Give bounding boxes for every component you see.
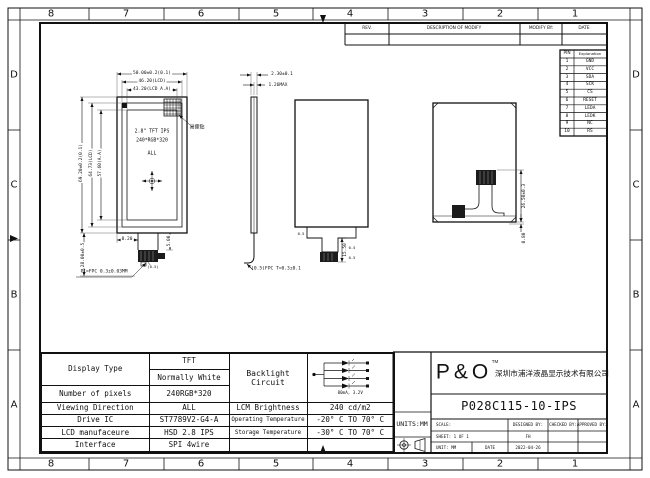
pin-number: 5: [566, 91, 569, 96]
zone-label: 6: [198, 9, 204, 20]
tear-sticker: [164, 99, 181, 116]
zone-label: 7: [123, 9, 129, 20]
dim-label: 0.5: [349, 256, 356, 260]
zone-label: C: [11, 180, 18, 191]
rev-header: REV.: [362, 26, 371, 30]
zone-label: 3: [422, 9, 428, 20]
pin-name: LEDA: [585, 106, 596, 111]
spec-value: ST7789V2-G4-A: [149, 414, 229, 426]
part-number: P028C115-10-IPS: [461, 400, 577, 412]
spec-table: Display Type TFT Backlight Circuit: [40, 352, 395, 453]
sheet-label: SHEET: 1 OF 1: [436, 434, 469, 438]
dim-label: 1.26MAX: [268, 84, 289, 89]
zone-label: B: [11, 290, 18, 301]
unit-label: UNIT: MM: [436, 445, 456, 449]
dim-label: 43.20(LCD A.A): [132, 88, 172, 93]
spec-value: TFT: [149, 353, 229, 370]
pin-number: 2: [566, 67, 569, 72]
zone-label: 1: [572, 9, 578, 20]
zone-label: D: [632, 70, 640, 81]
designed-by-label: DESIGNED BY:: [513, 423, 543, 427]
pin-name: SCK: [586, 83, 594, 88]
zone-label: 5: [273, 459, 279, 470]
spec-label: LCM Brightness: [229, 402, 307, 414]
spec-value: ALL: [149, 402, 229, 414]
dim-label: 0.5: [298, 232, 305, 236]
scale-label: SCALE:: [436, 423, 451, 427]
fpc-note: P1=FPC 0.3±0.03MM: [80, 271, 127, 276]
pin-number: 1: [566, 60, 569, 65]
spec-value: -20° C TO 70° C: [307, 414, 394, 426]
zone-label: 7: [123, 459, 129, 470]
designer-name: FH: [525, 434, 530, 438]
zone-label: 1: [572, 459, 578, 470]
zone-label: A: [633, 400, 640, 411]
backlight-rating: 80mA, 3.2V: [308, 391, 394, 396]
sticker-label: 易撕贴: [189, 126, 204, 131]
dim-label: 0.5: [349, 246, 356, 250]
spec-label: [229, 439, 307, 452]
zone-label: A: [11, 400, 18, 411]
backlight-circuit-cell: 80mA, 3.2V: [307, 353, 394, 402]
spec-value: 240 cd/m2: [307, 402, 394, 414]
dim-label: 0.80: [523, 232, 528, 245]
dim-label: 57.60(A.A): [99, 148, 104, 177]
spec-label: Operating Temperature: [229, 414, 307, 426]
spec-label: Drive IC: [41, 414, 149, 426]
pin-name: RS: [587, 130, 592, 135]
pin-number: 7: [566, 106, 569, 111]
zone-label: 5: [273, 9, 279, 20]
dim-label: 28.00±0.5: [82, 242, 87, 268]
zone-label: 2: [497, 459, 503, 470]
screen-label: ALL: [148, 153, 157, 158]
spec-label: Interface: [41, 439, 149, 452]
zone-label: 8: [48, 9, 54, 20]
pin-header: PIN: [563, 52, 570, 56]
zone-label: C: [633, 180, 640, 191]
backlight-circuit-label: Backlight Circuit: [229, 353, 307, 402]
spec-value: [307, 439, 394, 452]
dim-label: 26.50±0.3: [523, 183, 528, 209]
dim-label: 15.50: [344, 242, 349, 258]
date-header: DATE: [578, 26, 589, 30]
dim-label: 5.00: [168, 235, 173, 248]
spec-value: SPI 4wire: [149, 439, 229, 452]
pin-name: GND: [586, 60, 594, 65]
dim-label: 8.20: [121, 238, 134, 243]
checked-by-label: CHECKED BY:: [549, 423, 577, 427]
date-label: DATE: [485, 445, 495, 449]
pin-number: 3: [566, 75, 569, 80]
zone-label: D: [10, 70, 18, 81]
description-header: DESCRIPTION OF MODIFY: [427, 26, 481, 30]
spec-value: Normally White: [149, 370, 229, 386]
zone-label: 6: [198, 459, 204, 470]
zone-label: B: [633, 290, 640, 301]
side-view: [240, 72, 268, 270]
dim-label: 69.20±0.2(0.1): [80, 143, 85, 183]
company-name: 深圳市浦洋液晶显示技术有限公司: [495, 370, 609, 378]
spec-label: Number of pixels: [41, 386, 149, 402]
pin-number: 9: [566, 122, 569, 127]
outline-view: [295, 100, 368, 262]
pin-name: CS: [587, 91, 592, 96]
spec-label: Storage Temperature: [229, 427, 307, 439]
modify-by-header: MODIFY BY:: [529, 26, 553, 30]
viewing-direction-compass: [142, 171, 162, 191]
pin-name: VCC: [586, 67, 594, 72]
fpc-note: (0.5)FPC T=0.3±0.1: [251, 268, 301, 273]
company-logo: P&O: [436, 362, 492, 383]
spec-value: 240RGB*320: [149, 386, 229, 402]
pin-number: 10: [564, 130, 569, 135]
projection-symbol: [397, 438, 425, 452]
zone-label: 4: [347, 459, 353, 470]
back-view: [433, 103, 524, 232]
spec-label: Viewing Direction: [41, 402, 149, 414]
pin-number: 8: [566, 114, 569, 119]
pin-name: RESET: [583, 99, 597, 104]
zone-label: 3: [422, 459, 428, 470]
pin-name: SDA: [586, 75, 594, 80]
spec-value: -30° C TO 70° C: [307, 427, 394, 439]
spec-label: LCD manufaceure: [41, 427, 149, 439]
zone-label: 4: [347, 9, 353, 20]
pin-number: 6: [566, 99, 569, 104]
pin-number: 4: [566, 83, 569, 88]
dim-label: 64.73(LCD): [90, 148, 95, 177]
units-label: UNITS:MM: [396, 421, 427, 428]
date-value: 2022-04-26: [515, 445, 540, 449]
screen-label: 2.8" TFT IPS: [135, 131, 170, 136]
approved-by-label: APPROVED BY:: [577, 423, 607, 427]
dim-label: (0.5): [147, 265, 158, 269]
zone-label: 8: [48, 459, 54, 470]
backlight-circuit-diagram: [308, 359, 393, 391]
dim-label: 46.20(LCD): [137, 80, 166, 85]
dim-label: 50.00±0.2(0.1): [132, 72, 172, 77]
spec-label: Display Type: [41, 353, 149, 386]
trademark-mark: TM: [492, 360, 499, 365]
pin-name: LEDK: [585, 114, 596, 119]
dim-label: 2.30±0.1: [270, 73, 294, 78]
zone-label: 2: [497, 9, 503, 20]
drawing-sheet: 8 7 6 5 4 3 2 1 8 7 6 5 4 3 2 1 D C B A …: [0, 0, 650, 478]
screen-label: 240*RGB*320: [136, 140, 168, 145]
explanation-header: Explanation: [579, 52, 601, 56]
spec-value: HSD 2.8 IPS: [149, 427, 229, 439]
pin-name: NC: [587, 122, 592, 127]
